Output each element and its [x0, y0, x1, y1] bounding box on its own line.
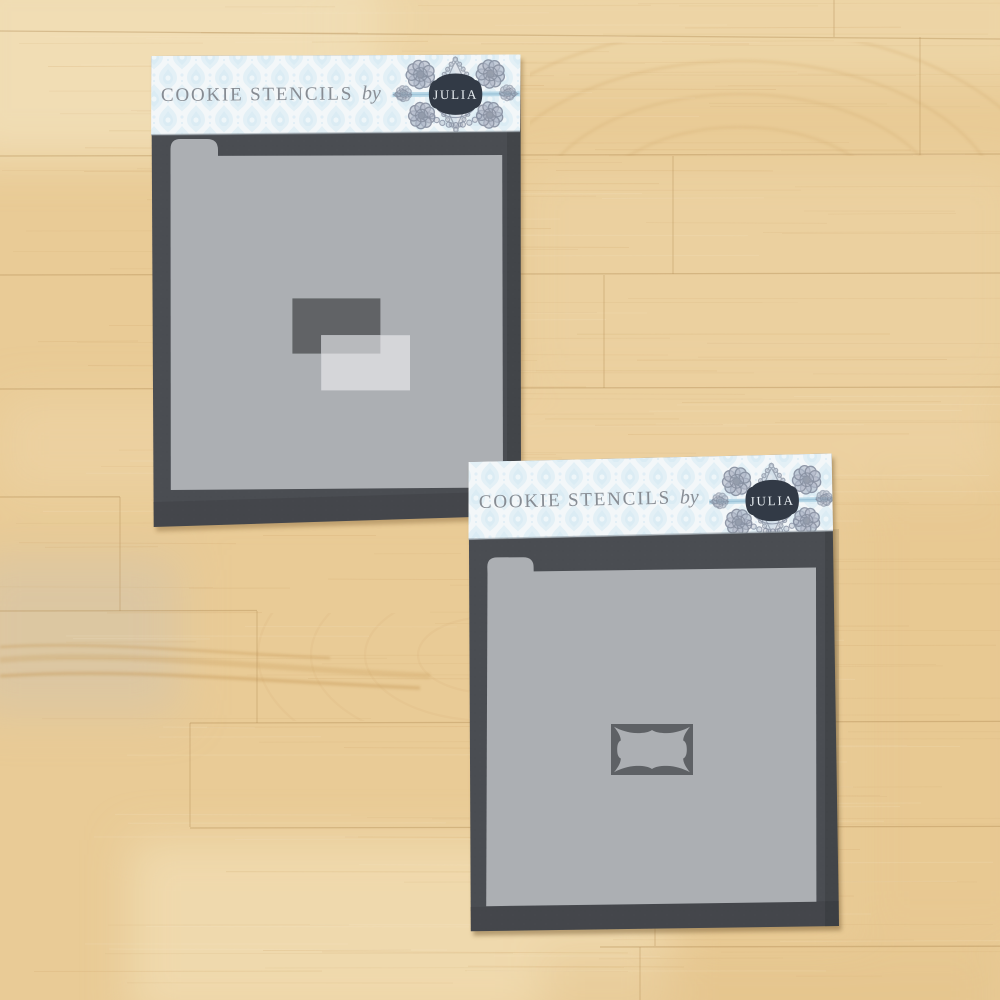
svg-text:by: by	[680, 486, 699, 508]
svg-text:COOKIE STENCILS: COOKIE STENCILS	[479, 488, 672, 513]
svg-text:JULIA: JULIA	[433, 87, 478, 102]
svg-text:COOKIE STENCILS: COOKIE STENCILS	[161, 83, 353, 106]
svg-text:JULIA: JULIA	[749, 493, 794, 509]
svg-text:by: by	[362, 82, 381, 104]
